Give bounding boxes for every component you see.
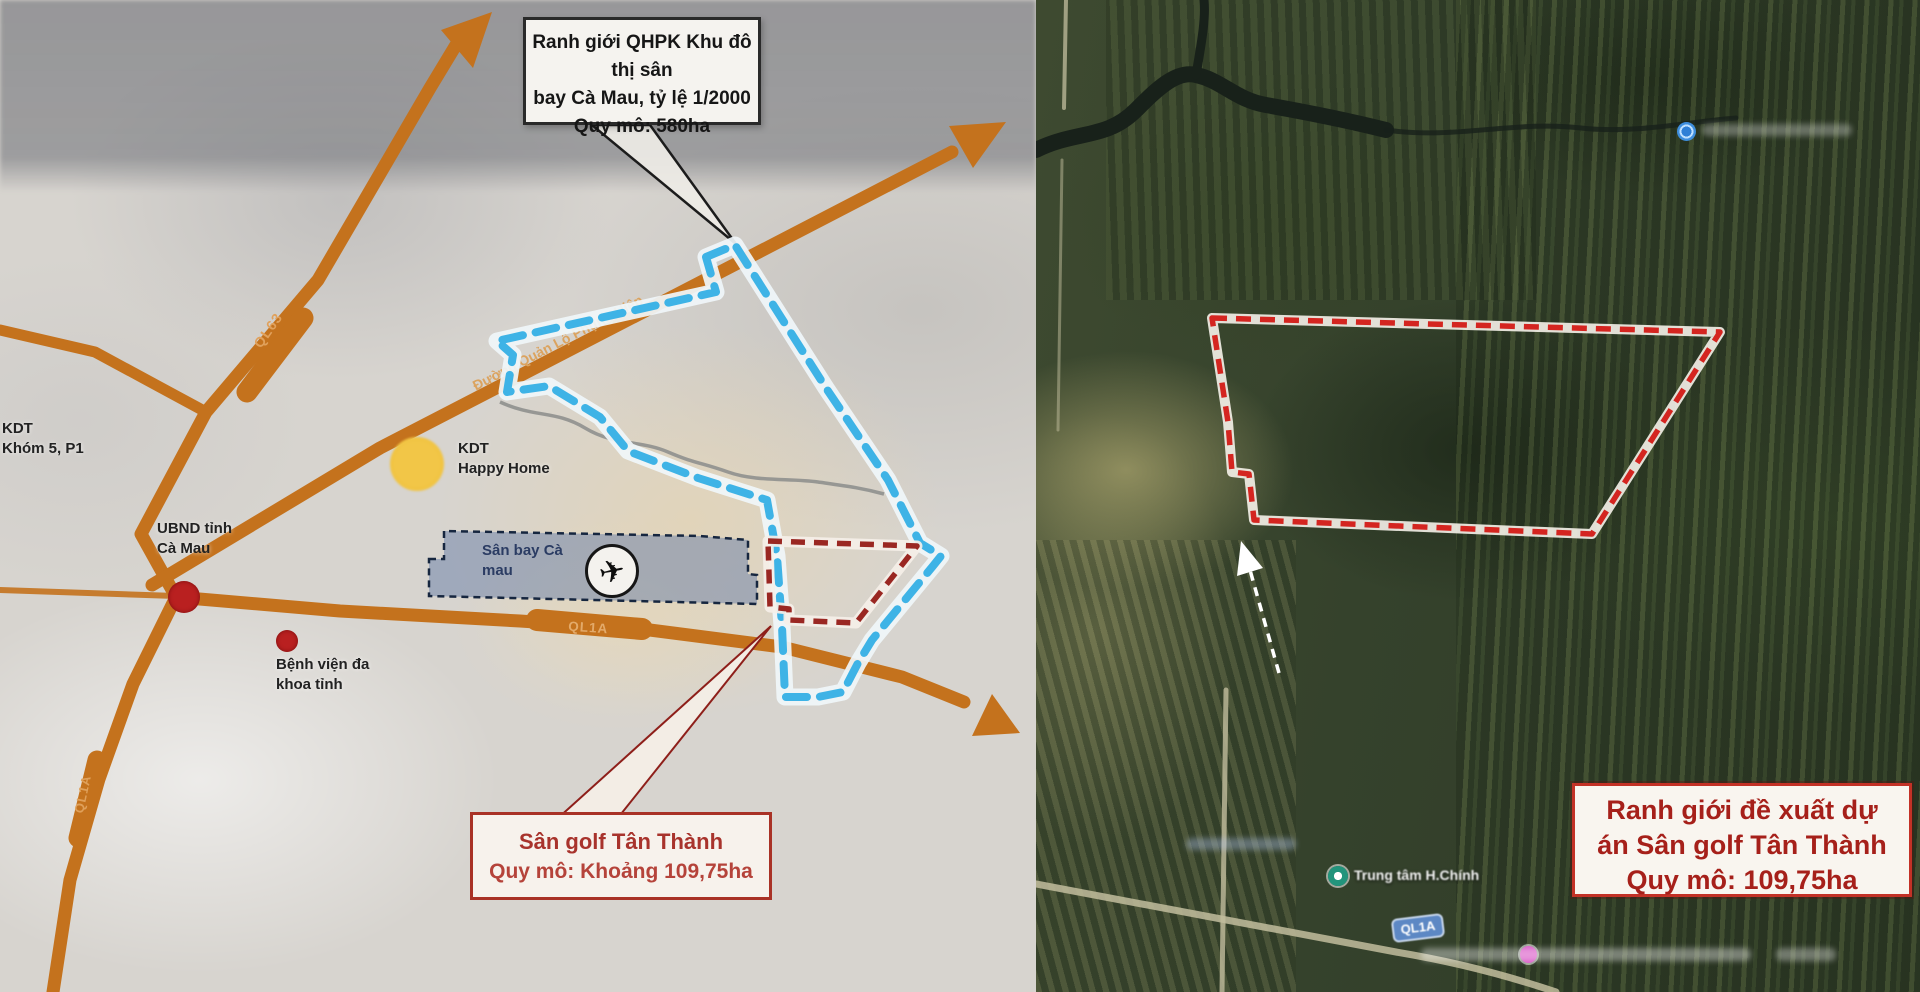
proposal-boundary-dash xyxy=(1212,318,1720,534)
satellite-map-panel[interactable]: Trung tâm H.Chính QL1A Ranh giới đề xuất… xyxy=(1036,0,1920,992)
proposal-boundary-halo xyxy=(1212,318,1720,534)
road-vertical-nw xyxy=(1064,0,1066,108)
golf-callout-line1: Sân golf Tân Thành xyxy=(473,826,769,857)
poi-happy-home-line1: KDT xyxy=(458,439,550,459)
airport-marker: ✈ xyxy=(585,544,639,598)
blue-poi-marker xyxy=(1677,122,1696,141)
proposal-callout-line2: án Sân golf Tân Thành xyxy=(1575,828,1909,863)
road-ql1a-south xyxy=(53,597,176,992)
arrowhead-phung-hiep xyxy=(949,122,1006,168)
arrowhead-ql1a-east xyxy=(972,694,1020,736)
airport-label-line2: mau xyxy=(482,561,563,581)
proposal-callout-line3: Quy mô: 109,75ha xyxy=(1575,863,1909,898)
poi-kdt-khom5-line2: Khóm 5, P1 xyxy=(2,439,84,459)
golf-callout: Sân golf Tân Thành Quy mô: Khoảng 109,75… xyxy=(470,812,772,900)
qhpk-callout-line3: Quy mô: 580ha xyxy=(526,113,758,141)
planning-map-panel[interactable]: QL63 Đường Quản Lộ Phụng Hiệp QL1A QL1A … xyxy=(0,0,1036,992)
illegible-text-smudge xyxy=(1186,838,1296,850)
poi-label-ubnd: UBND tỉnh Cà Mau xyxy=(157,519,232,559)
pointer-arrowhead xyxy=(1237,541,1263,576)
qhpk-callout: Ranh giới QHPK Khu đô thị sân bay Cà Mau… xyxy=(523,17,761,125)
rural-roads xyxy=(1036,0,1556,992)
screenshot-root: QL63 Đường Quản Lộ Phụng Hiệp QL1A QL1A … xyxy=(0,0,1920,992)
road-ql1a-satellite xyxy=(1036,884,1556,992)
airport-label: Sân bay Cà mau xyxy=(482,541,563,581)
qhpk-callout-line2: bay Cà Mau, tỷ lệ 1/2000 xyxy=(526,85,758,113)
airport-label-line1: Sân bay Cà xyxy=(482,541,563,561)
proposal-boundary xyxy=(1212,318,1720,534)
ubnd-marker-dot xyxy=(168,581,200,613)
pointer-arrow-white xyxy=(1237,541,1279,673)
illegible-text-smudge xyxy=(1421,948,1751,961)
pointer-wedge-golf xyxy=(557,626,771,819)
poi-happy-home-line2: Happy Home xyxy=(458,459,550,479)
proposal-callout: Ranh giới đề xuất dự án Sân golf Tân Thà… xyxy=(1572,783,1912,897)
canal xyxy=(1036,0,1736,150)
proposal-callout-line1: Ranh giới đề xuất dự xyxy=(1575,793,1909,828)
road-label-ql1a-east: QL1A xyxy=(568,619,609,637)
canal-main xyxy=(1036,74,1386,150)
pointer-wedge-qhpk xyxy=(592,125,736,244)
canal-branch xyxy=(1196,0,1204,75)
poi-benh-vien-line1: Bệnh viện đa xyxy=(276,655,369,675)
poi-label-kdt-khom5: KDT Khóm 5, P1 xyxy=(2,419,84,459)
green-poi-marker xyxy=(1328,866,1348,886)
road-fork-nw xyxy=(0,330,206,412)
happy-home-marker xyxy=(390,437,444,491)
poi-benh-vien-line2: khoa tỉnh xyxy=(276,675,369,695)
illegible-text-smudge xyxy=(1776,948,1836,961)
qhpk-callout-line1: Ranh giới QHPK Khu đô thị sân xyxy=(526,29,758,85)
pointer-arrow-line xyxy=(1248,563,1279,673)
road-vertical-w xyxy=(1058,160,1062,430)
airplane-icon: ✈ xyxy=(596,553,628,589)
poi-label-trung-tam: Trung tâm H.Chính xyxy=(1354,867,1479,883)
poi-ubnd-line2: Cà Mau xyxy=(157,539,232,559)
illegible-text-smudge xyxy=(1702,124,1852,136)
poi-label-benh-vien: Bệnh viện đa khoa tỉnh xyxy=(276,655,369,695)
poi-ubnd-line1: UBND tỉnh xyxy=(157,519,232,539)
hospital-marker-dot xyxy=(276,630,298,652)
golf-callout-line2: Quy mô: Khoảng 109,75ha xyxy=(473,857,769,887)
poi-kdt-khom5-line1: KDT xyxy=(2,419,84,439)
poi-label-happy-home: KDT Happy Home xyxy=(458,439,550,479)
